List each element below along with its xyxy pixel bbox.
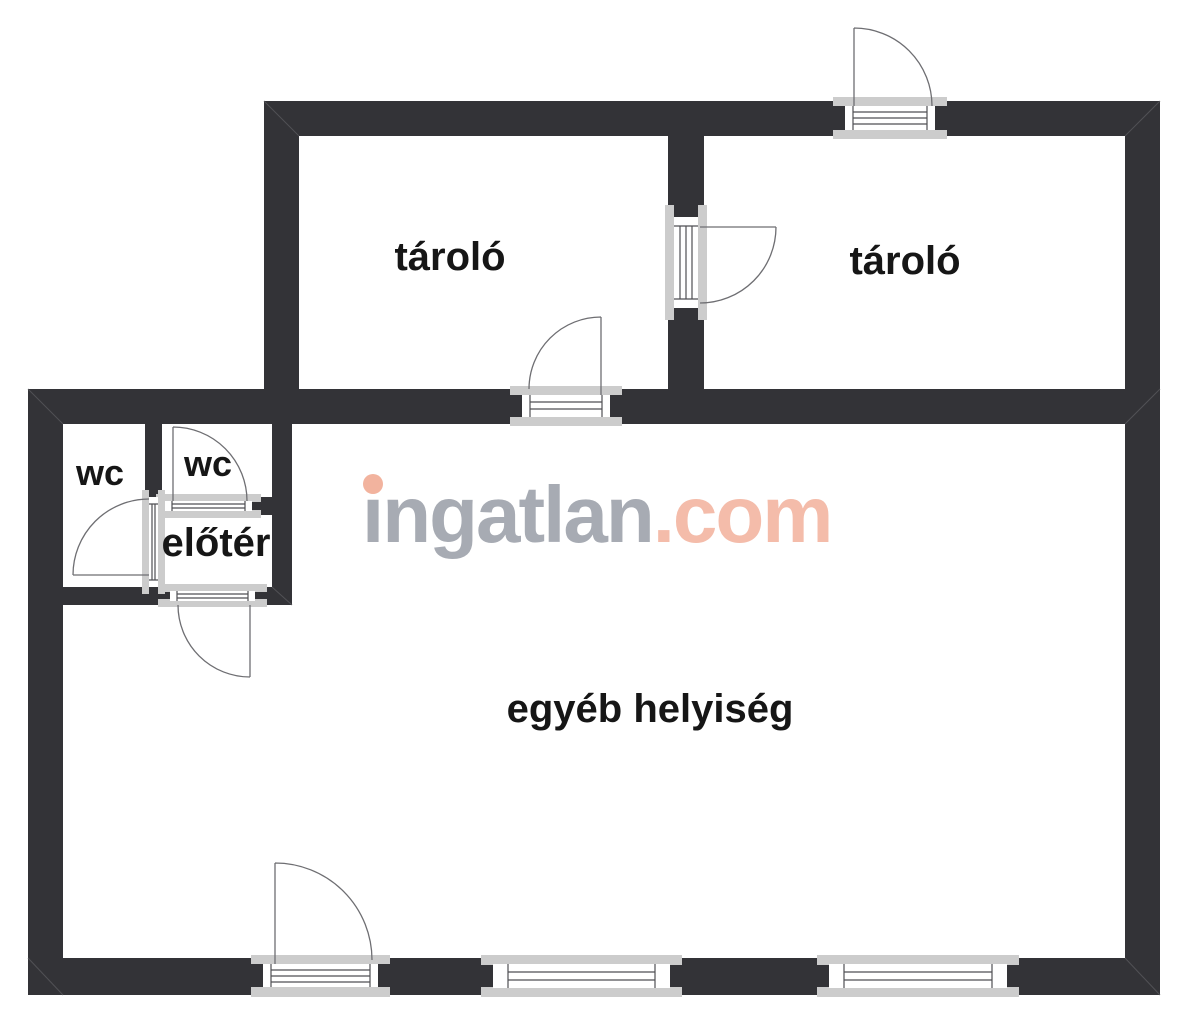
- wall-segment: [264, 101, 299, 424]
- door-swing: [854, 28, 932, 106]
- room-label-storage-left: tároló: [394, 235, 505, 279]
- room-label-storage-right: tároló: [849, 239, 960, 283]
- wall-segment: [610, 389, 1160, 424]
- wall-segment: [145, 424, 162, 497]
- wall-segment: [272, 424, 292, 605]
- room-label-other: egyéb helyiség: [507, 687, 794, 731]
- door-frame-center: [149, 497, 158, 587]
- door-frame-band: [665, 205, 674, 320]
- watermark-logo: ingatlan.com: [362, 470, 831, 559]
- door-swing: [73, 499, 149, 575]
- wall-segment: [264, 101, 845, 136]
- window-frame-band: [481, 955, 682, 965]
- door-frame-band: [142, 490, 149, 594]
- door-swing: [700, 227, 776, 303]
- wall-segment: [1007, 958, 1160, 995]
- door-frame-center: [522, 395, 610, 417]
- door-frame-band: [833, 97, 947, 106]
- floor-plan: ingatlan.com tároló tároló wc wc előtér …: [0, 0, 1190, 1024]
- watermark-brand: ingatlan: [362, 470, 653, 559]
- watermark: ingatlan.com: [362, 470, 831, 559]
- window-frame-band: [817, 987, 1019, 997]
- wall-segment: [670, 958, 829, 995]
- window-frame-center: [493, 964, 670, 988]
- door-frame-center: [165, 501, 252, 511]
- window-frame-center: [829, 964, 1007, 988]
- room-label-wc-right: wc: [183, 443, 232, 484]
- door-frame-band: [156, 510, 261, 518]
- door-swing: [275, 863, 372, 964]
- floor-plan-drawing: ingatlan.com tároló tároló wc wc előtér …: [0, 0, 1190, 1024]
- watermark-tld: .com: [653, 470, 832, 559]
- door-frame-center: [170, 591, 255, 601]
- watermark-i-dot: [363, 474, 383, 494]
- door-frame-band: [833, 130, 947, 139]
- wall-segment: [28, 958, 263, 995]
- wall-segment: [668, 136, 704, 217]
- door-frame-band: [510, 417, 622, 426]
- door-swing: [529, 317, 601, 395]
- window-frame-band: [817, 955, 1019, 965]
- door-frame-band: [158, 584, 267, 592]
- room-label-hall: előtér: [162, 521, 271, 565]
- wall-segment: [668, 308, 704, 389]
- door-frame-band: [510, 386, 622, 395]
- wall-segment: [378, 958, 493, 995]
- wall-segment: [28, 389, 522, 424]
- door-frame-band: [156, 494, 261, 502]
- wall-segment: [1125, 101, 1160, 995]
- window-frame-band: [481, 987, 682, 997]
- room-label-wc-left: wc: [75, 452, 124, 493]
- wall-segment: [63, 587, 170, 605]
- door-frame-band: [251, 987, 390, 997]
- door-swing: [178, 605, 250, 677]
- wall-segment: [28, 389, 63, 995]
- door-frame-band: [251, 955, 390, 964]
